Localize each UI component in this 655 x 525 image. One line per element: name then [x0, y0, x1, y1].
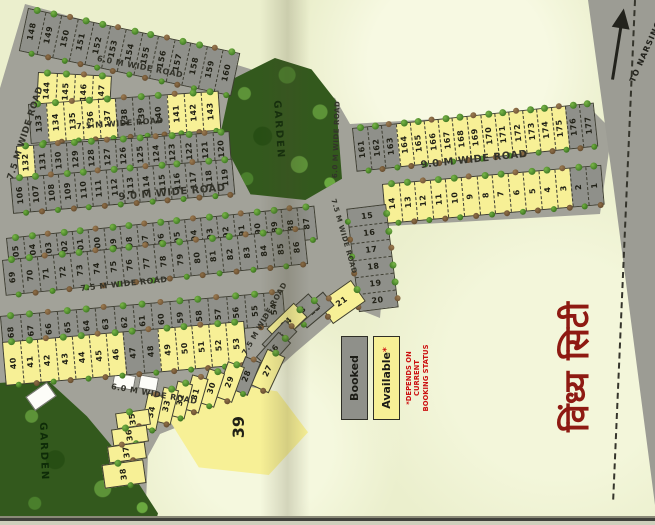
plot-number: 130 — [55, 151, 64, 170]
plot-number: 41 — [27, 355, 36, 368]
plot-number: 74 — [93, 262, 102, 275]
plot-number: 176 — [570, 117, 580, 136]
garden-label: GARDEN — [37, 422, 50, 482]
plot-number: 163 — [386, 137, 396, 156]
plot-number: 169 — [471, 128, 481, 147]
plot-number: 158 — [189, 56, 201, 75]
plot-number: 62 — [120, 316, 129, 329]
legend-available-swatch: Available* — [373, 336, 400, 420]
plot-number: 162 — [372, 138, 382, 157]
plot-number: 109 — [63, 182, 73, 201]
plot-number: 66 — [45, 322, 54, 335]
plot-number: 81 — [210, 249, 219, 262]
plot-number: 48 — [146, 345, 155, 358]
plot-number: 175 — [555, 119, 565, 138]
plot-number: 177 — [584, 116, 594, 135]
plot-number: 121 — [201, 140, 210, 159]
legend-booked-swatch: Booked — [341, 336, 368, 420]
plot-number: 111 — [95, 179, 105, 198]
plot-number: 78 — [159, 255, 168, 268]
plot-number: 122 — [185, 142, 194, 161]
plot-number: 11 — [435, 193, 444, 206]
plot-number: 44 — [78, 351, 87, 364]
page-edge — [0, 516, 655, 525]
plot-number: 84 — [260, 244, 269, 257]
plot-number: 167 — [443, 131, 453, 150]
plot-number: 9 — [466, 193, 474, 200]
plot-number: 172 — [513, 123, 523, 142]
legend-note: *DEPENDS ON CURRENT BOOKING STATUS — [405, 336, 430, 420]
plot-number: 63 — [101, 317, 110, 330]
plot-number: 71 — [43, 267, 52, 280]
plot-177: 177 — [579, 104, 597, 147]
plot-number: 107 — [32, 184, 42, 203]
plot-number: 60 — [158, 312, 167, 325]
plot-number: 131 — [38, 152, 47, 171]
plot-number: 40 — [9, 357, 18, 370]
plot-number: 36 — [125, 429, 135, 442]
plot-number: 21 — [335, 295, 350, 309]
plot-number: 83 — [243, 246, 252, 259]
plot-number: 53 — [232, 337, 241, 350]
plot-number: 52 — [215, 339, 224, 352]
plot-number: 57 — [214, 308, 223, 321]
plot-number: 127 — [103, 147, 112, 166]
plot-1: 1 — [585, 166, 604, 205]
plot-number: 106 — [16, 186, 26, 205]
plot-number: 86 — [293, 241, 302, 254]
plot-number: 129 — [71, 150, 80, 169]
plot-number: 123 — [168, 143, 177, 162]
plot-number: 168 — [457, 129, 467, 148]
legend-asterisk: * — [381, 347, 392, 352]
plot-number: 82 — [226, 248, 235, 261]
plot-number: 7 — [497, 190, 505, 197]
site-title: विंध्य सिटी — [552, 210, 598, 432]
plot-number: 4 — [544, 186, 552, 193]
legend-available-label: Available — [380, 352, 393, 409]
plot-number: 39 — [229, 416, 248, 438]
plot-number: 2 — [575, 183, 583, 190]
plot-number: 141 — [172, 104, 181, 123]
plot-number: 13 — [404, 195, 413, 208]
plot-number: 142 — [189, 103, 198, 122]
plot-number: 65 — [64, 321, 73, 334]
plot-number: 55 — [251, 304, 260, 317]
plot-number: 15 — [361, 211, 374, 220]
plot-number: 159 — [205, 60, 217, 79]
plot-number: 38 — [119, 467, 129, 480]
plot-number: 5 — [529, 187, 537, 194]
plot-number: 42 — [44, 354, 53, 367]
plot-number: 45 — [95, 349, 104, 362]
plot-number: 16 — [363, 229, 376, 238]
plot-number: 12 — [420, 194, 429, 207]
plot-number: 134 — [52, 113, 61, 132]
plot-number: 161 — [357, 140, 367, 159]
plot-number: 14 — [388, 197, 397, 210]
plot-number: 10 — [451, 191, 460, 204]
legend: Booked Available* *DEPENDS ON CURRENT BO… — [341, 336, 430, 420]
plot-number: 150 — [59, 29, 71, 48]
plot-number: 160 — [221, 63, 233, 82]
garden-label: GARDEN — [271, 100, 286, 160]
plot-number: 58 — [195, 309, 204, 322]
plot-number: 174 — [541, 120, 551, 139]
plot-number: 56 — [233, 306, 242, 319]
plot-number: 43 — [61, 352, 70, 365]
plot-number: 46 — [112, 348, 121, 361]
plot-number: 6 — [513, 189, 521, 196]
plot-number: 79 — [176, 253, 185, 266]
plot-number: 126 — [120, 146, 129, 165]
plot-number: 27 — [262, 364, 274, 378]
plot-number: 77 — [143, 256, 152, 269]
plot-number: 67 — [27, 324, 36, 337]
site-plan-map: TO NARSINGHPUR GARDEN GARDEN 39 6.0 M WI… — [0, 0, 655, 525]
plot-number: 128 — [87, 148, 96, 167]
plot-number: 166 — [428, 132, 438, 151]
plot-number: 165 — [414, 134, 424, 153]
plot-number: 143 — [206, 102, 215, 121]
plot-number: 1 — [591, 182, 599, 189]
plot-number: 108 — [48, 183, 58, 202]
plot-number: 151 — [76, 32, 88, 51]
plot-number: 110 — [79, 180, 89, 199]
plot-number: 75 — [109, 260, 118, 273]
plot-number: 50 — [181, 342, 190, 355]
plot-number: 49 — [164, 343, 173, 356]
plot-number: 35 — [128, 412, 138, 425]
legend-booked-label: Booked — [348, 355, 361, 401]
plot-number: 171 — [499, 125, 509, 144]
plot-number: 59 — [176, 311, 185, 324]
plot-number: 18 — [367, 262, 380, 271]
plot-number: 69 — [9, 270, 18, 283]
plot-number: 29 — [224, 375, 236, 389]
plot-number: 72 — [59, 265, 68, 278]
plot-number: 47 — [129, 346, 138, 359]
plot-number: 20 — [371, 296, 384, 305]
plot-number: 76 — [126, 258, 135, 271]
plot-143: 143 — [201, 92, 221, 131]
plot-number: 8 — [482, 192, 490, 199]
plot-number: 73 — [76, 263, 85, 276]
plot-number: 85 — [276, 242, 285, 255]
plot-number: 170 — [485, 126, 495, 145]
plot-number: 30 — [206, 381, 217, 395]
plot-number: 51 — [198, 340, 207, 353]
plot-number: 17 — [365, 245, 378, 254]
plot-number: 164 — [400, 135, 410, 154]
plot-number: 173 — [527, 122, 537, 141]
plot-number: 124 — [152, 144, 161, 163]
plot-number: 64 — [83, 319, 92, 332]
plot-86: 86 — [287, 229, 307, 265]
plot-number: 68 — [7, 326, 16, 339]
plot-number: 61 — [139, 314, 148, 327]
plot-number: 19 — [369, 279, 382, 288]
plot-number: 80 — [193, 251, 202, 264]
plot-number: 37 — [122, 446, 132, 459]
plot-number: 152 — [92, 36, 104, 55]
plot-number: 3 — [560, 185, 568, 192]
plot-number: 70 — [26, 269, 35, 282]
plot-number: 125 — [136, 145, 145, 164]
plot-number: 148 — [27, 22, 39, 41]
plot-number: 149 — [43, 25, 55, 44]
